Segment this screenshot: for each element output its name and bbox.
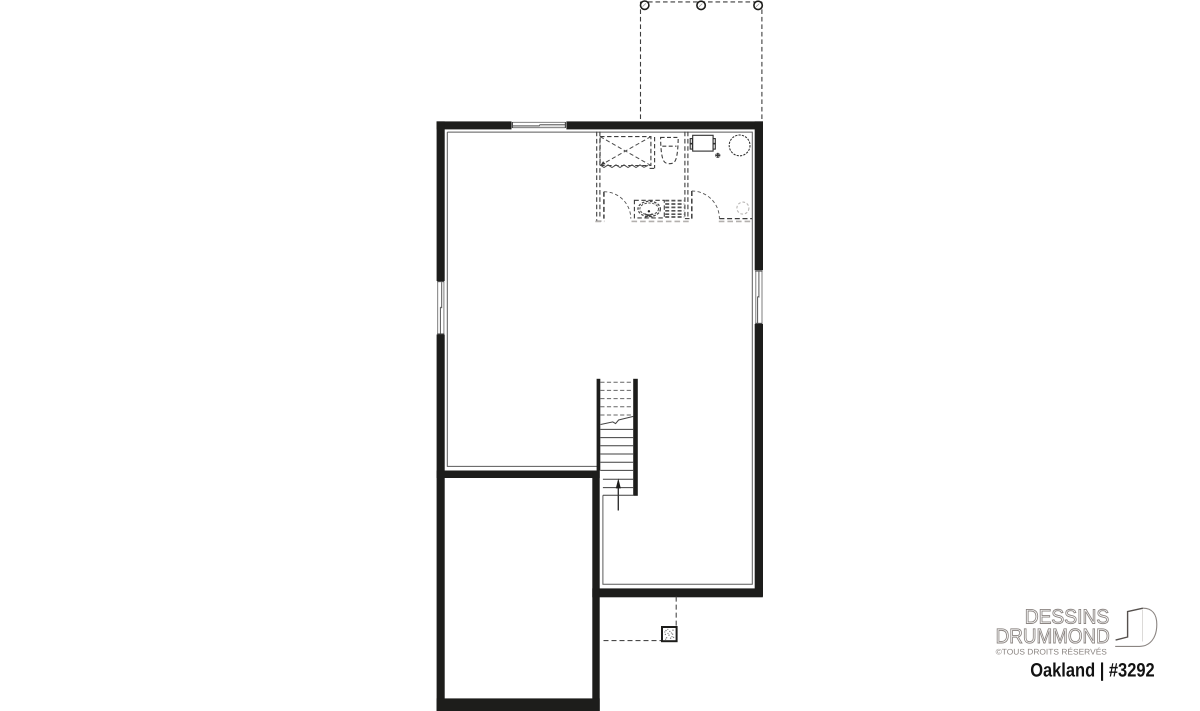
- svg-text:©TOUS DROITS RÉSERVÉS: ©TOUS DROITS RÉSERVÉS: [996, 647, 1108, 657]
- svg-text:Oakland | #3292: Oakland | #3292: [1030, 660, 1155, 682]
- svg-text:DRUMMOND: DRUMMOND: [996, 625, 1110, 648]
